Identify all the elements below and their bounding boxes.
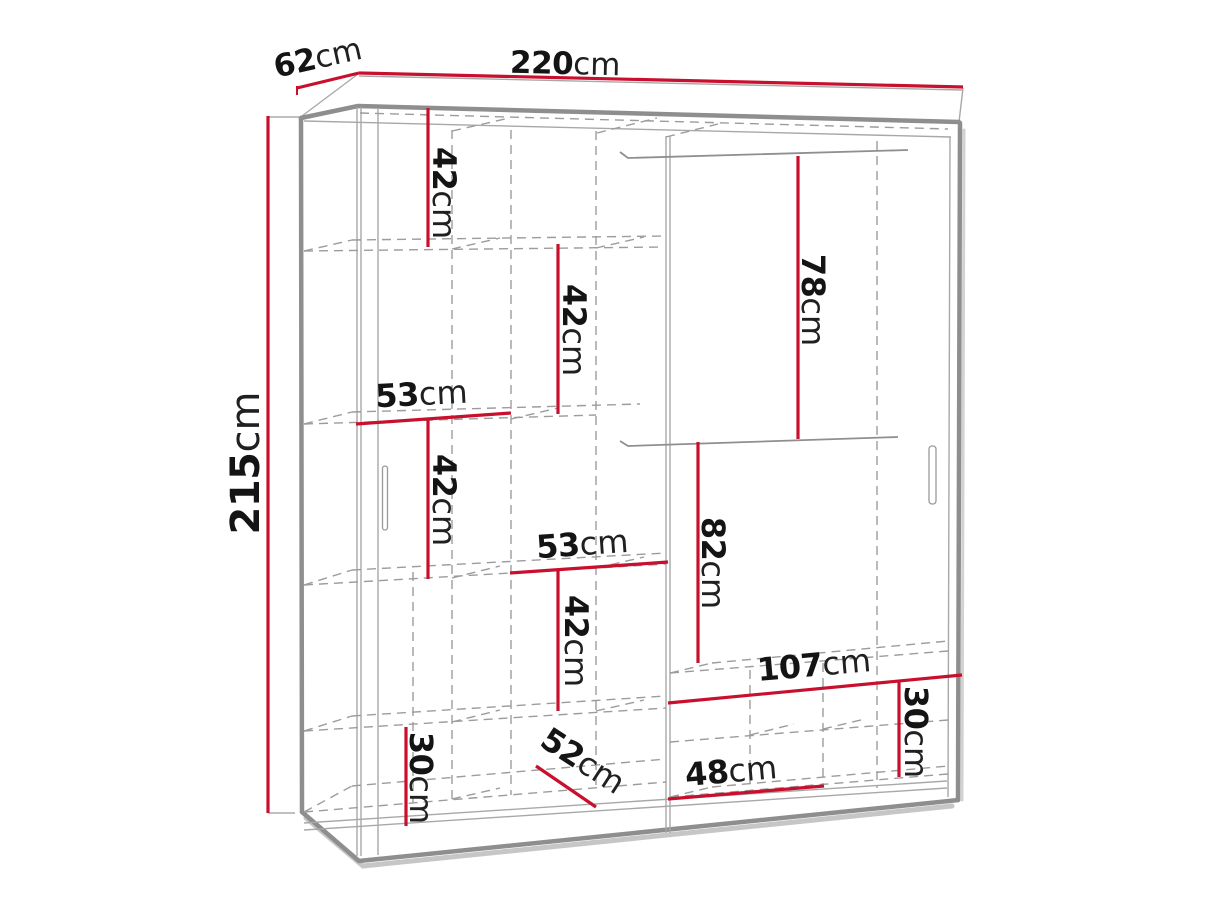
label-42-c: 42cm	[425, 454, 463, 546]
center-door-edge	[666, 136, 670, 833]
label-30-right: 30cm	[897, 686, 935, 778]
interior-hidden-lines	[304, 113, 948, 812]
right-door-handle	[929, 446, 936, 504]
diagram-canvas: 220cm 62cm 215cm 42cm 42cm 53cm 42cm 53c…	[0, 0, 1216, 912]
label-53-b: 53cm	[535, 522, 630, 566]
dimension-lines	[268, 73, 963, 826]
wardrobe-dimension-diagram: 220cm 62cm 215cm 42cm 42cm 53cm 42cm 53c…	[0, 0, 1216, 912]
label-78: 78cm	[794, 254, 832, 346]
label-107: 107cm	[756, 641, 873, 689]
left-sliding-door	[357, 107, 388, 856]
label-52: 52cm	[534, 720, 632, 802]
right-sliding-door	[620, 150, 936, 504]
label-width-220: 220cm	[510, 45, 621, 83]
wardrobe-outline	[301, 106, 964, 866]
label-height-215: 215cm	[223, 392, 269, 535]
label-42-a: 42cm	[425, 147, 463, 239]
label-42-b: 42cm	[555, 284, 593, 376]
label-depth-62: 62cm	[270, 31, 365, 85]
label-30-left: 30cm	[402, 732, 440, 824]
left-door-handle	[383, 466, 388, 530]
label-42-d: 42cm	[557, 595, 595, 687]
dim-line-53-b	[510, 562, 668, 573]
label-82: 82cm	[694, 517, 732, 609]
dimension-labels: 220cm 62cm 215cm 42cm 42cm 53cm 42cm 53c…	[223, 31, 935, 824]
label-53-a: 53cm	[374, 373, 468, 416]
label-48: 48cm	[683, 748, 778, 794]
